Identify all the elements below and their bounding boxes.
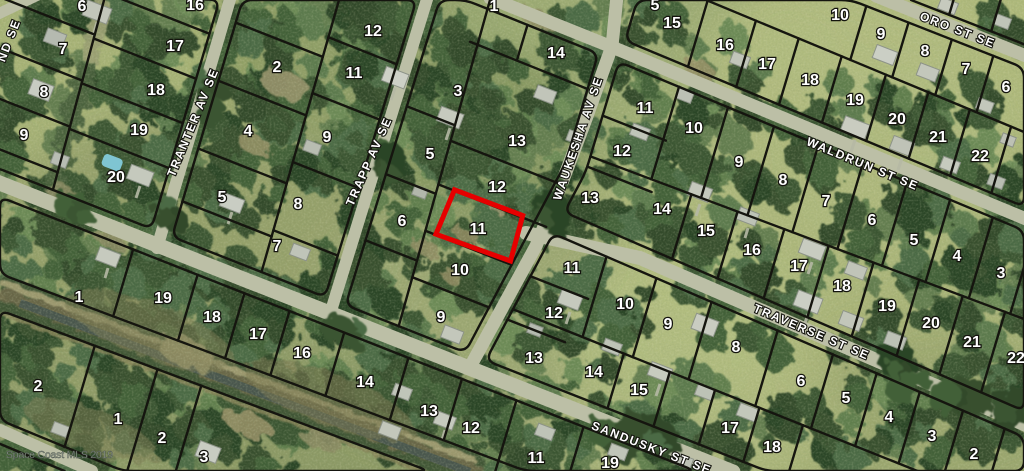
svg-text:11: 11: [470, 221, 487, 238]
svg-text:19: 19: [130, 122, 148, 139]
svg-text:15: 15: [697, 223, 715, 240]
svg-text:Space Coast MLS 2019: Space Coast MLS 2019: [6, 449, 113, 461]
svg-text:9: 9: [735, 154, 744, 171]
svg-text:7: 7: [273, 238, 282, 255]
svg-text:4: 4: [885, 409, 894, 426]
svg-text:5: 5: [910, 232, 919, 249]
svg-text:9: 9: [877, 26, 886, 43]
svg-text:20: 20: [922, 315, 940, 332]
svg-text:20: 20: [107, 169, 125, 186]
svg-text:22: 22: [1007, 350, 1024, 367]
svg-text:19: 19: [601, 455, 619, 471]
svg-text:11: 11: [346, 65, 363, 82]
svg-text:1: 1: [114, 411, 123, 428]
svg-text:11: 11: [564, 260, 581, 277]
svg-text:13: 13: [420, 403, 438, 420]
svg-text:8: 8: [732, 339, 741, 356]
svg-text:10: 10: [451, 262, 469, 279]
svg-text:9: 9: [20, 127, 29, 144]
svg-text:2: 2: [273, 59, 282, 76]
svg-text:19: 19: [846, 92, 864, 109]
svg-text:16: 16: [743, 242, 761, 259]
svg-text:20: 20: [888, 111, 906, 128]
svg-text:13: 13: [581, 190, 599, 207]
svg-text:13: 13: [508, 133, 526, 150]
svg-text:8: 8: [40, 84, 49, 101]
svg-text:9: 9: [437, 309, 446, 326]
svg-text:2: 2: [970, 446, 979, 463]
svg-text:6: 6: [78, 0, 87, 15]
svg-text:17: 17: [790, 258, 808, 275]
svg-text:6: 6: [1002, 79, 1011, 96]
svg-text:12: 12: [364, 23, 382, 40]
svg-text:10: 10: [685, 120, 703, 137]
svg-text:22: 22: [971, 148, 989, 165]
svg-text:3: 3: [200, 449, 209, 466]
svg-text:6: 6: [868, 212, 877, 229]
svg-text:18: 18: [147, 82, 165, 99]
svg-text:5: 5: [842, 390, 851, 407]
svg-text:18: 18: [763, 439, 781, 456]
svg-text:12: 12: [488, 179, 506, 196]
svg-text:4: 4: [953, 248, 962, 265]
svg-text:11: 11: [637, 100, 654, 117]
svg-text:1: 1: [75, 289, 84, 306]
svg-text:9: 9: [323, 129, 332, 146]
svg-text:5: 5: [651, 0, 660, 14]
svg-text:21: 21: [963, 334, 981, 351]
svg-text:8: 8: [921, 43, 930, 60]
svg-text:17: 17: [758, 56, 776, 73]
svg-text:7: 7: [822, 193, 831, 210]
svg-text:12: 12: [462, 420, 480, 437]
svg-text:19: 19: [878, 298, 896, 315]
svg-text:18: 18: [833, 278, 851, 295]
svg-text:17: 17: [721, 420, 739, 437]
svg-text:1: 1: [490, 0, 499, 15]
svg-text:11: 11: [528, 450, 545, 467]
svg-text:14: 14: [585, 364, 603, 381]
svg-text:6: 6: [797, 373, 806, 390]
svg-text:3: 3: [928, 428, 937, 445]
svg-text:5: 5: [218, 189, 227, 206]
svg-text:19: 19: [154, 290, 172, 307]
svg-text:18: 18: [801, 72, 819, 89]
svg-text:6: 6: [398, 213, 407, 230]
svg-text:9: 9: [664, 316, 673, 333]
svg-text:16: 16: [293, 345, 311, 362]
svg-text:3: 3: [997, 265, 1006, 282]
svg-text:2: 2: [158, 430, 167, 447]
svg-text:13: 13: [525, 350, 543, 367]
svg-text:8: 8: [294, 196, 303, 213]
svg-text:12: 12: [613, 143, 631, 160]
svg-text:15: 15: [630, 382, 648, 399]
svg-text:15: 15: [663, 15, 681, 32]
svg-text:21: 21: [929, 129, 947, 146]
svg-text:2: 2: [34, 378, 43, 395]
svg-text:10: 10: [616, 296, 634, 313]
svg-text:12: 12: [545, 305, 563, 322]
svg-text:10: 10: [831, 7, 849, 24]
svg-text:3: 3: [454, 83, 463, 100]
svg-text:16: 16: [186, 0, 204, 14]
svg-text:14: 14: [653, 201, 671, 218]
svg-text:14: 14: [547, 45, 565, 62]
svg-text:16: 16: [716, 37, 734, 54]
svg-text:5: 5: [426, 146, 435, 163]
svg-text:18: 18: [203, 309, 221, 326]
svg-text:17: 17: [249, 326, 267, 343]
svg-text:7: 7: [962, 61, 971, 78]
svg-text:8: 8: [779, 172, 788, 189]
svg-text:14: 14: [356, 374, 374, 391]
svg-text:17: 17: [166, 38, 184, 55]
svg-text:7: 7: [59, 41, 68, 58]
svg-text:4: 4: [244, 123, 253, 140]
